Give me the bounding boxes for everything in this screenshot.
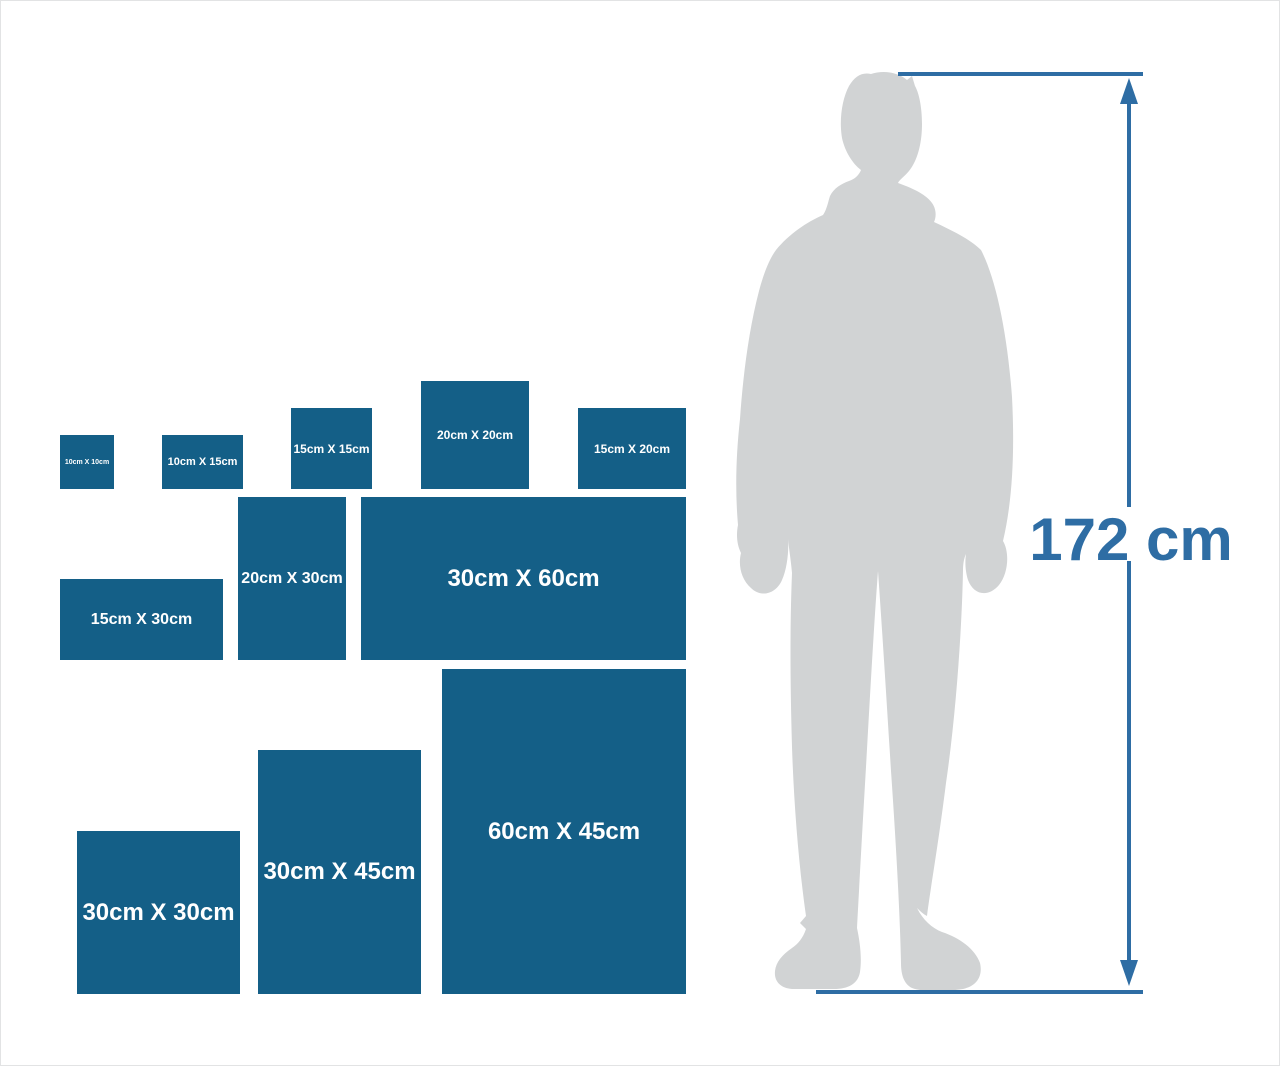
size-box-label: 15cm X 20cm: [594, 442, 670, 456]
size-box-30x60: 30cm X 60cm: [361, 497, 686, 660]
person-silhouette: [731, 67, 1021, 995]
size-box-label: 30cm X 30cm: [82, 899, 234, 927]
measure-bottom-cap-line: [816, 990, 1143, 994]
size-box-label: 60cm X 45cm: [488, 818, 640, 846]
size-box-15x20: 15cm X 20cm: [578, 408, 686, 489]
arrow-up-icon: [1120, 78, 1138, 104]
size-box-label: 20cm X 30cm: [241, 570, 342, 588]
height-value-label: 172 cm: [1021, 505, 1241, 574]
size-box-label: 15cm X 30cm: [91, 611, 192, 629]
size-box-20x20: 20cm X 20cm: [421, 381, 529, 489]
size-box-15x15: 15cm X 15cm: [291, 408, 372, 489]
person-silhouette-shape: [736, 72, 1013, 991]
arrow-down-icon: [1120, 960, 1138, 986]
size-box-10x10: 10cm X 10cm: [60, 435, 114, 489]
size-box-label: 15cm X 15cm: [293, 442, 369, 456]
size-box-label: 10cm X 10cm: [65, 459, 109, 466]
size-box-label: 20cm X 20cm: [437, 428, 513, 442]
size-box-label: 30cm X 60cm: [447, 565, 599, 593]
size-box-30x30: 30cm X 30cm: [77, 831, 240, 994]
size-box-15x30: 15cm X 30cm: [60, 579, 223, 660]
measure-top-cap-line: [898, 72, 1143, 76]
size-box-30x45: 30cm X 45cm: [258, 750, 421, 994]
size-box-10x15: 10cm X 15cm: [162, 435, 243, 489]
size-box-60x45: 60cm X 45cm: [442, 669, 686, 994]
size-box-20x30: 20cm X 30cm: [238, 497, 346, 660]
size-comparison-canvas: 10cm X 10cm10cm X 15cm15cm X 15cm20cm X …: [0, 0, 1280, 1066]
measure-line-lower-segment: [1127, 561, 1131, 963]
measure-line-upper-segment: [1127, 97, 1131, 507]
size-box-label: 30cm X 45cm: [263, 858, 415, 886]
size-box-label: 10cm X 15cm: [168, 456, 238, 468]
